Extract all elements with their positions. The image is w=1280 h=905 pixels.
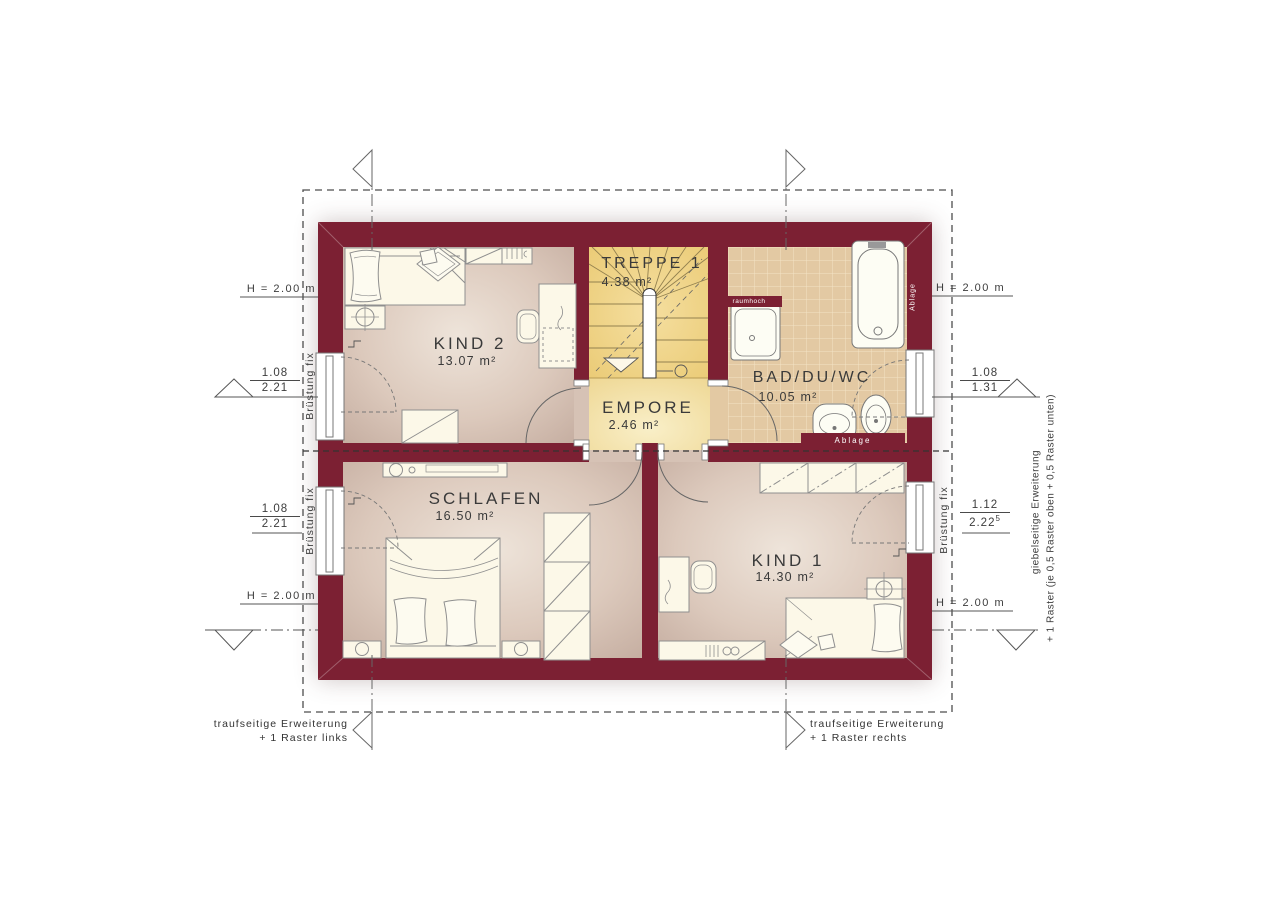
room-label-treppe: TREPPE 1 [601,255,702,273]
note-extension-left: traufseitige Erweiterung + 1 Raster link… [160,717,348,745]
room-area-kind1: 14.30 m² [756,570,815,584]
room-label-bad: BAD/DU/WC [753,369,872,387]
room-area-empore: 2.46 m² [609,418,660,432]
room-label-empore: EMPORE [602,398,694,418]
dim-height-right-bottom: H = 2.00 m [936,597,1005,609]
note-extension-right: traufseitige Erweiterung + 1 Raster rech… [810,717,944,745]
window-bad [906,350,934,417]
room-area-kind2: 13.07 m² [438,354,497,368]
room-label-kind1: KIND 1 [752,551,825,571]
dim-height-left-bottom: H = 2.00 m [226,590,316,602]
shower [731,305,780,360]
room-label-kind2: KIND 2 [434,334,507,354]
label-ablage-wall: Ablage [910,283,917,311]
dim-height-right-top: H = 2.00 m [936,282,1005,294]
room-area-bad: 10.05 m² [759,390,818,404]
dim-window-left-bottom: 1.08 2.21 [250,503,300,530]
label-bruestung-right: Brüstung fix [938,486,950,553]
floorplan-canvas: KIND 2 13.07 m² TREPPE 1 4.38 m² BAD/DU/… [0,0,1280,905]
dim-window-right-bottom: 1.12 2.225 [960,499,1010,529]
label-raumhoch: raumhoch [716,296,782,307]
dim-window-left-top: 1.08 2.21 [250,367,300,394]
dim-window-right-top: 1.08 1.31 [960,367,1010,394]
room-area-treppe: 4.38 m² [602,275,653,289]
window-kind2 [316,353,344,440]
note-gable-extension-line1: giebelseitige Erweiterung [1031,450,1042,574]
label-bruestung-left-top: Brüstung fix [304,352,316,419]
room-label-schlafen: SCHLAFEN [429,489,544,509]
floorplan-drawing [0,0,1280,905]
room-area-schlafen: 16.50 m² [436,509,495,523]
note-gable-extension-line2: + 1 Raster (je 0,5 Raster oben + 0,5 Ras… [1046,394,1057,642]
label-bruestung-left-bottom: Brüstung fix [304,487,316,554]
window-kind1 [906,482,934,553]
toilet [861,395,891,437]
label-ablage-shelf: Ablage [801,433,905,448]
dim-height-left-top: H = 2.00 m [226,283,316,295]
window-schlafen [316,487,344,575]
